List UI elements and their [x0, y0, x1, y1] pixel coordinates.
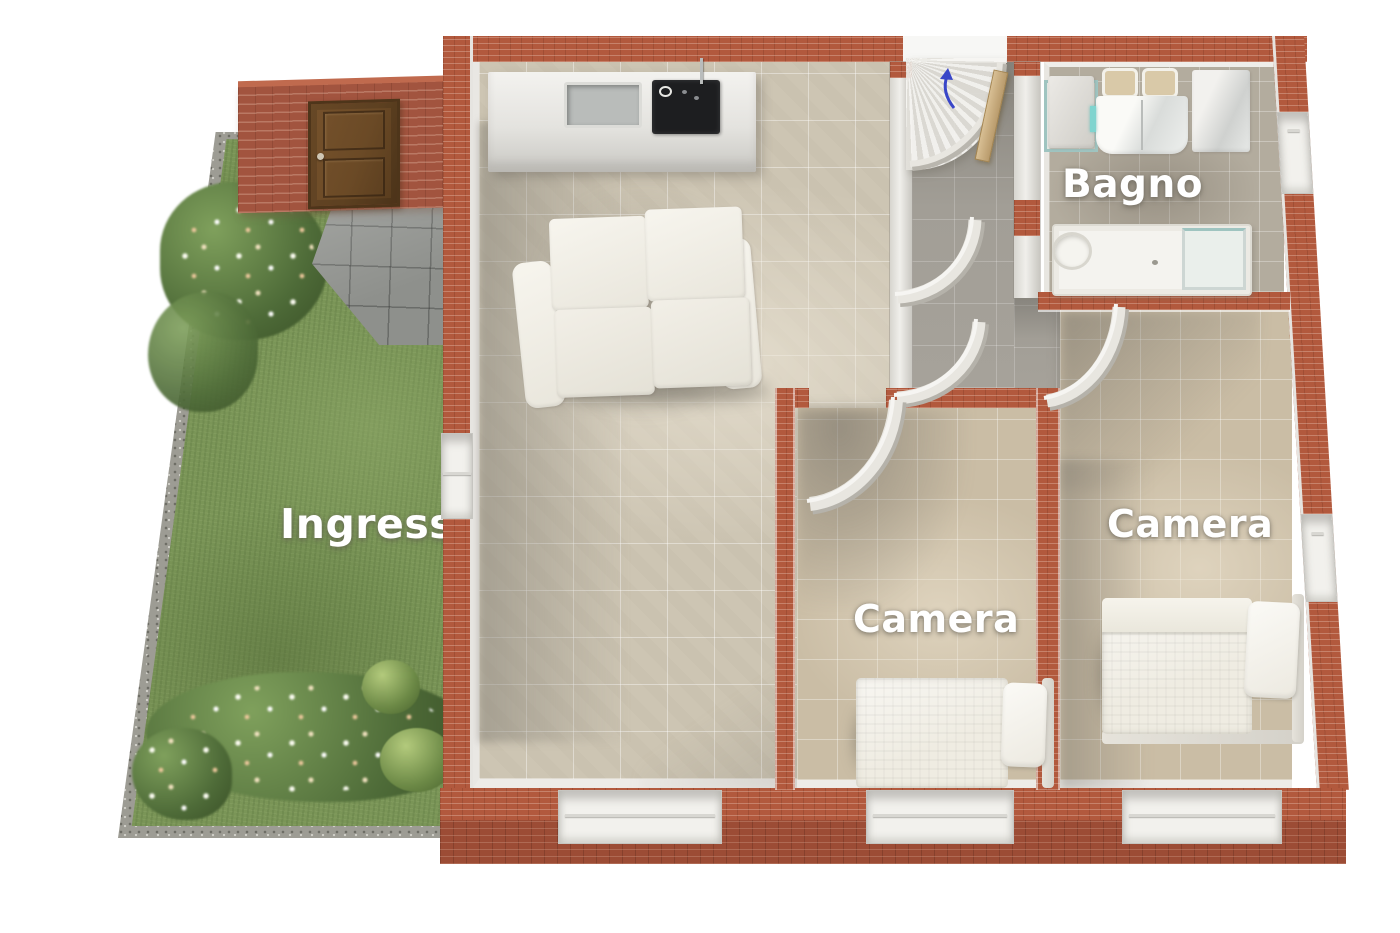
- bathroom-cabinet-left: [1048, 76, 1094, 148]
- double-sink-vanity: [1096, 66, 1188, 154]
- bed-middle-mattress: [856, 678, 1008, 788]
- label-bagno: Bagno: [1062, 162, 1203, 207]
- kitchen-sink: [564, 82, 642, 128]
- vanity-basin-left: [1102, 68, 1138, 98]
- wall-hallway-bathroom: [1014, 62, 1040, 298]
- vanity-divider-line: [1141, 100, 1143, 150]
- window-left-wall: [441, 433, 473, 519]
- bed-middle-pillow: [1001, 682, 1048, 767]
- wall-living-camera-middle: [775, 388, 795, 790]
- kitchen-cooktop: [652, 80, 720, 134]
- entrance-arrow-icon: [932, 66, 966, 112]
- plants-bottom-left: [132, 728, 232, 820]
- curved-door-hall-upper: [891, 213, 979, 301]
- exterior-wall-top: [455, 36, 1307, 62]
- glass-shelf-teal: [1090, 106, 1096, 132]
- curved-door-camera-middle: [803, 393, 903, 511]
- shower-glass-box: [1182, 228, 1246, 290]
- round-bush-small: [362, 660, 420, 714]
- sink-bowl-icon: [659, 86, 672, 97]
- bathroom-cabinet-right: [1192, 70, 1250, 152]
- sofa-seat-cushion-left: [554, 307, 655, 398]
- toilet: [1048, 228, 1096, 292]
- label-camera-middle: Camera: [853, 597, 1019, 641]
- sofa-seat-cushion-right: [651, 297, 752, 388]
- kitchen-faucet: [700, 58, 703, 84]
- sofa-back-cushion-right: [645, 206, 745, 301]
- floorplan-scene: Ingresso: [0, 0, 1400, 933]
- drain-dot: [1152, 260, 1158, 265]
- hedge-left: [148, 292, 258, 412]
- garden-wall: [238, 81, 472, 214]
- bed-right-pillow: [1244, 601, 1301, 700]
- bed-camera-middle: [856, 678, 1054, 788]
- sofa-back-cushion-left: [549, 216, 649, 311]
- window-bottom-camera-middle: [866, 790, 1014, 844]
- kitchen-counter: [488, 72, 756, 172]
- window-right-wall-bottom: [1300, 514, 1337, 602]
- curved-door-hall-lower: [891, 316, 985, 404]
- exterior-wall-left: [443, 36, 473, 790]
- sofa: [515, 210, 764, 410]
- window-bottom-living: [558, 790, 722, 844]
- flowers-bottom-left: [140, 735, 224, 812]
- bed-camera-right: [1102, 594, 1304, 746]
- bed-right-sheet-fold: [1102, 598, 1252, 632]
- window-bottom-camera-right: [1122, 790, 1282, 844]
- curved-door-camera-right: [1040, 300, 1126, 408]
- label-camera-right: Camera: [1107, 502, 1273, 546]
- garden-entry-door: [308, 99, 400, 210]
- vanity-basin-right: [1142, 68, 1178, 98]
- window-right-wall-top: [1277, 112, 1314, 194]
